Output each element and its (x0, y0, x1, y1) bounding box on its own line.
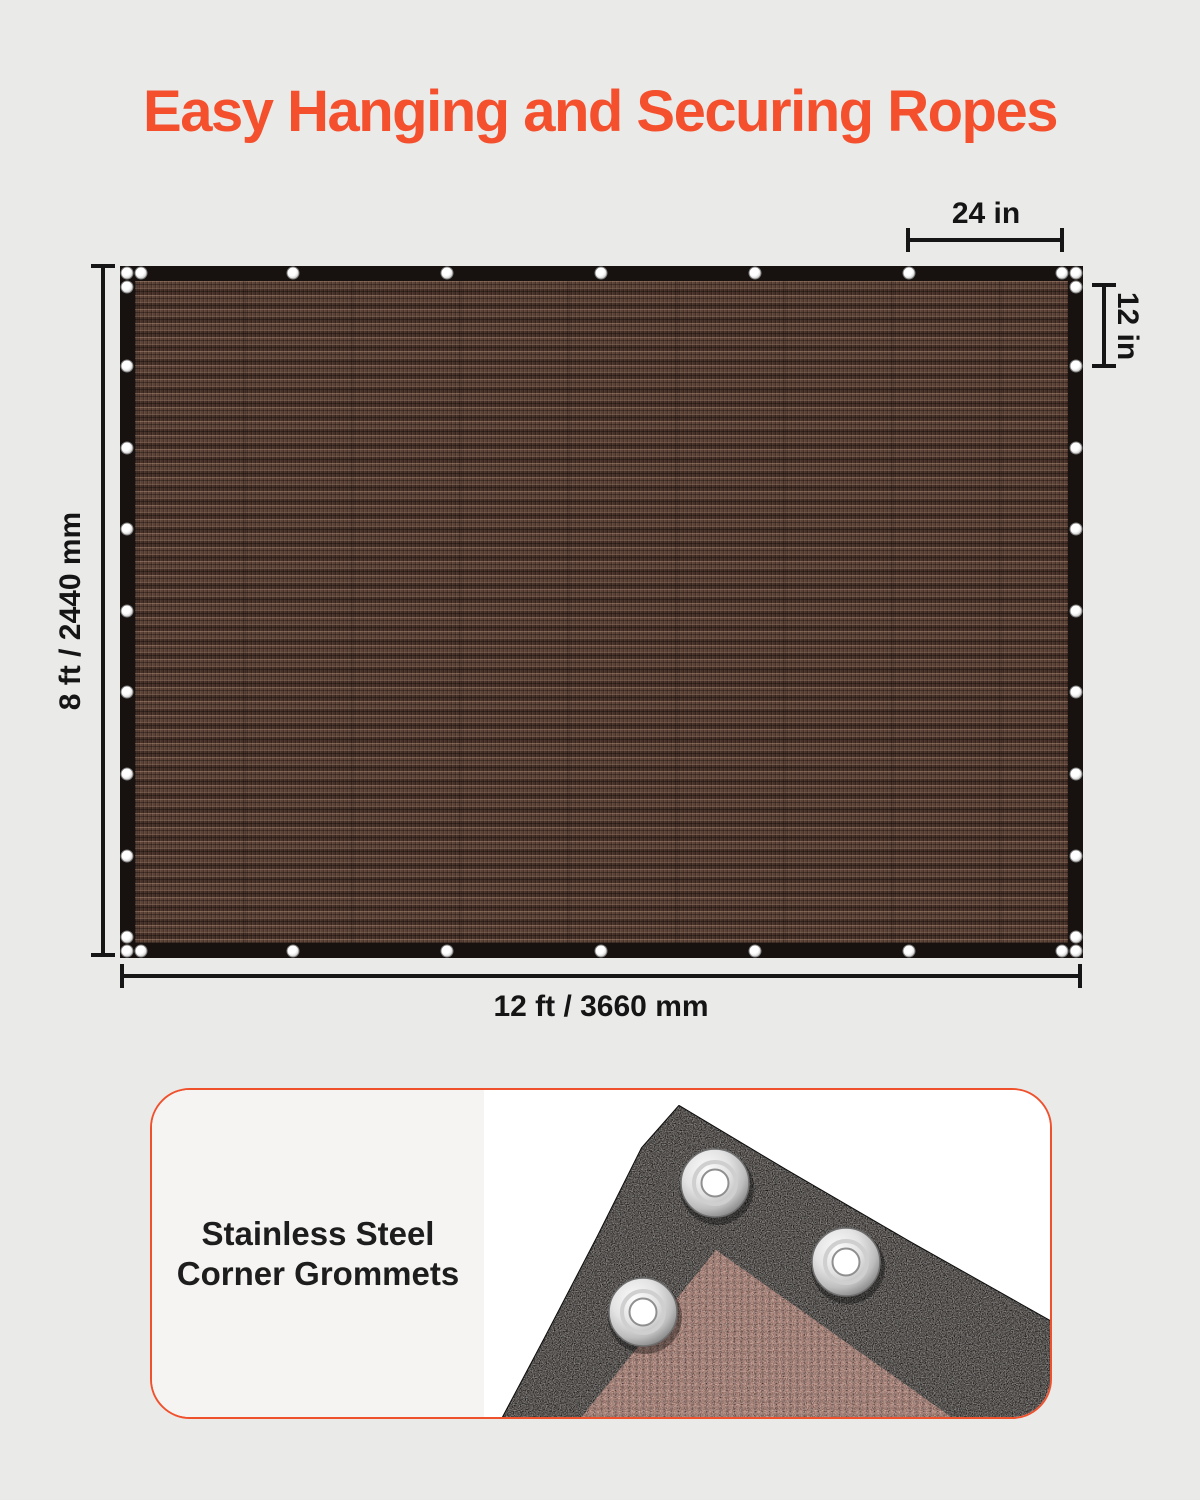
grommet (1070, 686, 1083, 699)
width-dimension-tick-right (1078, 964, 1082, 988)
grommet (121, 281, 134, 294)
grommet (121, 442, 134, 455)
grommet (1070, 931, 1083, 944)
grommet (287, 267, 300, 280)
grommet (1056, 945, 1069, 958)
grommet (135, 945, 148, 958)
side-spacing-label: 12 in (1110, 292, 1144, 360)
grommet (135, 267, 148, 280)
height-dimension-tick-bottom (91, 953, 115, 957)
width-dimension-tick-left (120, 964, 124, 988)
grommet (1070, 945, 1083, 958)
side-spacing-tick-bottom (1092, 364, 1116, 368)
corner-grommet-illustration (484, 1090, 1050, 1417)
width-dimension-label: 12 ft / 3660 mm (493, 990, 708, 1024)
shade-cloth-diagram (120, 266, 1083, 958)
feature-caption-line1: Stainless Steel (202, 1214, 435, 1254)
grommet (1070, 281, 1083, 294)
grommet (1070, 267, 1083, 280)
grommet (1070, 523, 1083, 536)
grommet (903, 945, 916, 958)
grommet (121, 360, 134, 373)
grommet (1070, 768, 1083, 781)
height-dimension-label: 8 ft / 2440 mm (54, 512, 88, 710)
grommet (595, 945, 608, 958)
grommet (121, 768, 134, 781)
top-spacing-label: 24 in (952, 197, 1020, 231)
side-spacing-tick-top (1092, 283, 1116, 287)
grommet-feature-card: Stainless Steel Corner Grommets (150, 1088, 1052, 1419)
grommet (121, 523, 134, 536)
mesh-fabric (135, 281, 1068, 943)
grommet (903, 267, 916, 280)
grommet (1070, 442, 1083, 455)
side-spacing-line (1102, 285, 1106, 367)
grommet (441, 267, 454, 280)
grommet (441, 945, 454, 958)
grommet (595, 267, 608, 280)
grommet (749, 267, 762, 280)
grommet (1070, 605, 1083, 618)
top-spacing-tick-left (906, 228, 910, 252)
grommet (121, 686, 134, 699)
feature-caption-panel: Stainless Steel Corner Grommets (152, 1090, 484, 1417)
grommet (1070, 360, 1083, 373)
grommet (121, 850, 134, 863)
grommet (121, 605, 134, 618)
grommet (749, 945, 762, 958)
grommet (121, 931, 134, 944)
height-dimension-line (101, 266, 105, 957)
top-spacing-line (908, 238, 1064, 242)
grommet (121, 267, 134, 280)
product-infographic: Easy Hanging and Securing Ropes 8 ft / 2… (0, 0, 1200, 1500)
top-spacing-tick-right (1060, 228, 1064, 252)
feature-caption-line2: Corner Grommets (177, 1254, 459, 1294)
grommet (287, 945, 300, 958)
page-title: Easy Hanging and Securing Ropes (0, 78, 1200, 145)
height-dimension-tick-top (91, 264, 115, 268)
grommet (1056, 267, 1069, 280)
width-dimension-line (120, 974, 1082, 978)
grommet (121, 945, 134, 958)
corner-grommet-photo (484, 1090, 1050, 1417)
grommet (1070, 850, 1083, 863)
